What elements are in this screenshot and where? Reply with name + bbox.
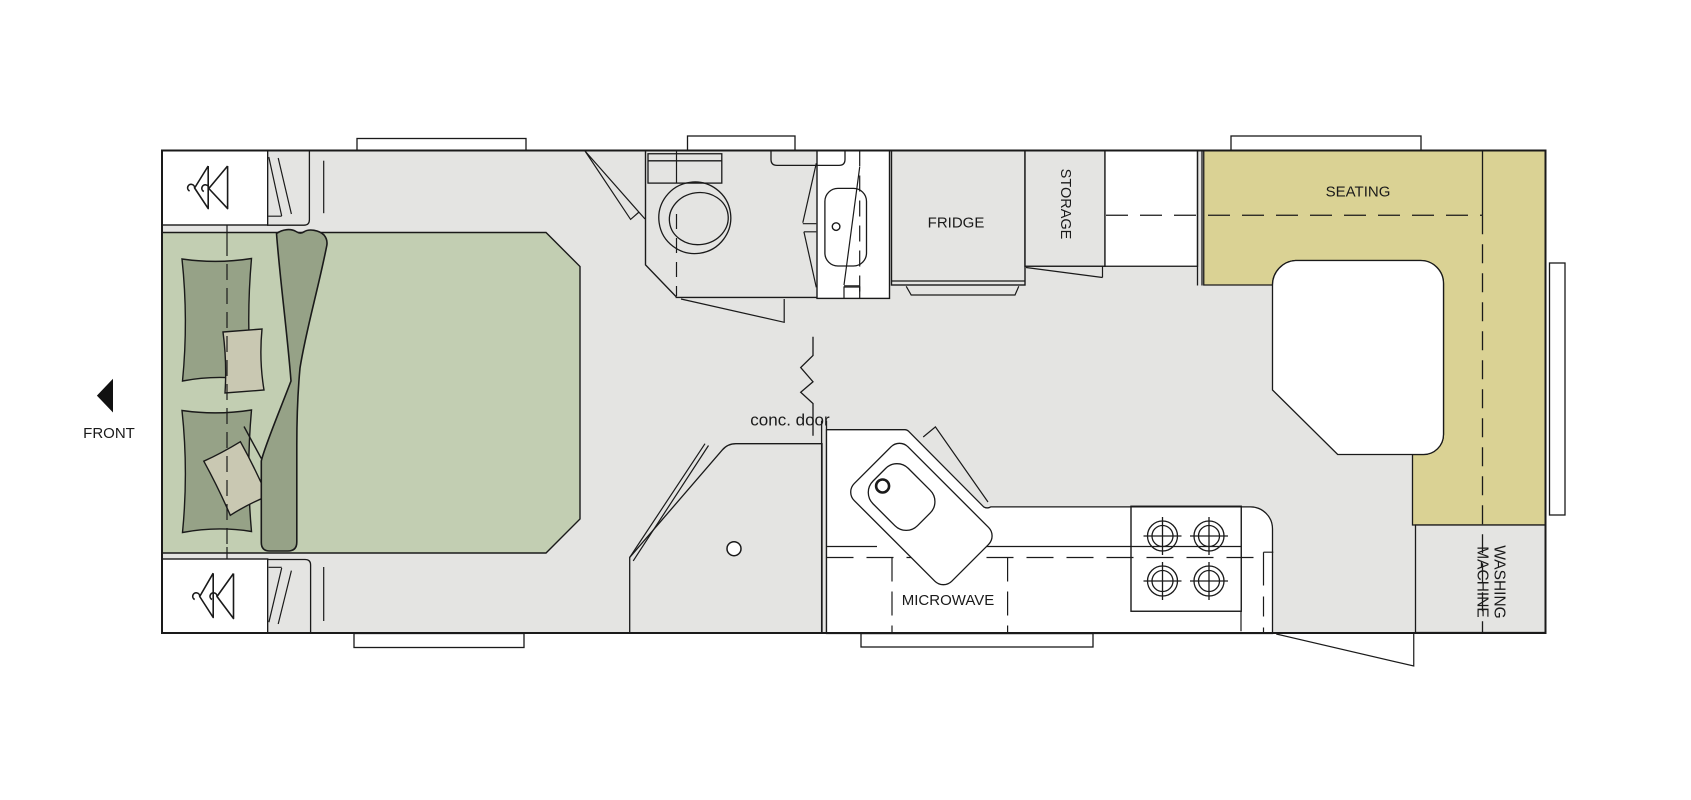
svg-text:FRONT: FRONT bbox=[83, 425, 135, 442]
svg-text:MICROWAVE: MICROWAVE bbox=[902, 592, 995, 609]
svg-text:STORAGE: STORAGE bbox=[1057, 169, 1073, 240]
svg-text:conc. door: conc. door bbox=[750, 411, 830, 430]
svg-text:FRIDGE: FRIDGE bbox=[928, 215, 985, 232]
svg-text:WASHING: WASHING bbox=[1491, 545, 1508, 618]
svg-text:SEATING: SEATING bbox=[1326, 184, 1391, 201]
